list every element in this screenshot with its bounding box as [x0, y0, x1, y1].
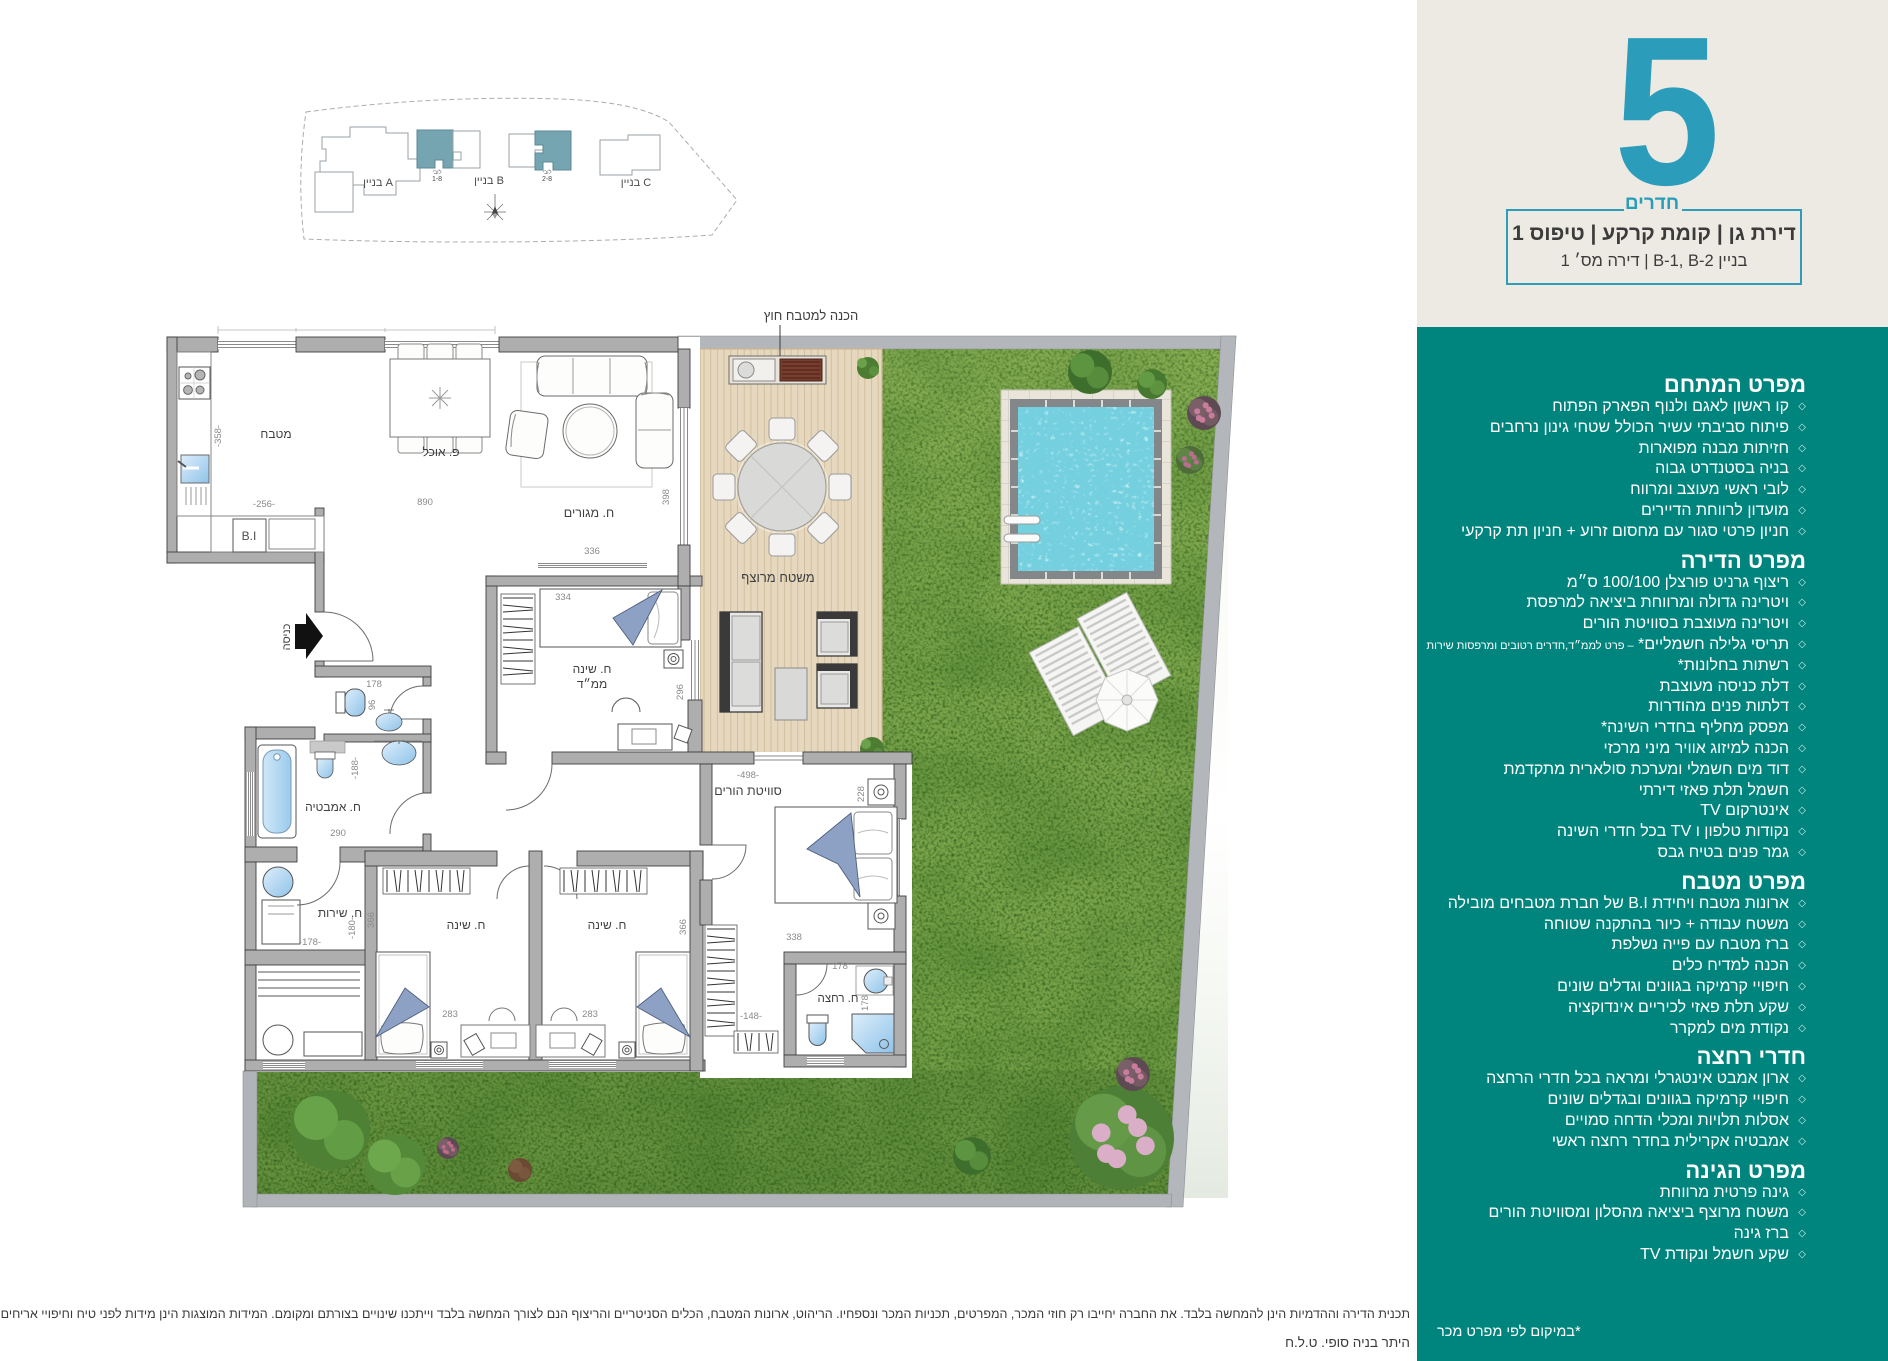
- svg-text:2-8: 2-8: [542, 176, 552, 183]
- svg-text:890: 890: [417, 497, 433, 508]
- svg-text:כניסה: כניסה: [281, 623, 293, 650]
- svg-text:משטח מרוצף: משטח מרוצף: [741, 570, 814, 585]
- svg-text:הכנה למטבח חוץ: הכנה למטבח חוץ: [764, 308, 858, 323]
- svg-text:283: 283: [442, 1009, 458, 1020]
- svg-text:ח. שינה: ח. שינה: [447, 918, 486, 932]
- svg-text:סוויטת הורים: סוויטת הורים: [714, 784, 782, 798]
- svg-text:366: 366: [366, 912, 377, 928]
- svg-text:לובי: לובי: [542, 169, 551, 176]
- svg-text:398: 398: [661, 489, 672, 505]
- svg-text:228: 228: [856, 786, 867, 802]
- svg-text:290: 290: [330, 828, 346, 839]
- svg-text:-358-: -358-: [213, 425, 224, 447]
- svg-text:פ. אוכל: פ. אוכל: [422, 445, 459, 459]
- svg-text:283: 283: [582, 1009, 598, 1020]
- svg-text:ח. שינה: ח. שינה: [588, 918, 627, 932]
- svg-text:בניין C: בניין C: [621, 177, 651, 189]
- svg-text:ממ״ד: ממ״ד: [577, 677, 607, 691]
- svg-text:לובי: לובי: [432, 169, 441, 176]
- svg-text:ח. מגורים: ח. מגורים: [564, 506, 614, 520]
- svg-text:178: 178: [832, 961, 848, 972]
- svg-text:336: 336: [584, 546, 600, 557]
- svg-text:-188-: -188-: [350, 757, 361, 779]
- svg-text:-256-: -256-: [253, 499, 275, 510]
- svg-text:-498-: -498-: [737, 770, 759, 781]
- svg-text:334: 334: [555, 592, 571, 603]
- svg-text:-180-: -180-: [347, 917, 358, 939]
- svg-text:ח. אמבטיה: ח. אמבטיה: [305, 800, 361, 814]
- svg-text:178: 178: [860, 995, 871, 1011]
- svg-text:178: 178: [366, 679, 382, 690]
- svg-text:-178-: -178-: [299, 937, 321, 948]
- svg-text:338: 338: [786, 932, 802, 943]
- svg-text:ח. שינה: ח. שינה: [573, 662, 612, 676]
- svg-text:296: 296: [675, 684, 686, 700]
- svg-text:ח. רחצה: ח. רחצה: [818, 993, 859, 1005]
- svg-text:1-8: 1-8: [432, 176, 442, 183]
- svg-text:366: 366: [678, 919, 689, 935]
- svg-text:B.I: B.I: [242, 529, 257, 543]
- svg-text:בניין A: בניין A: [363, 177, 393, 189]
- svg-text:-148-: -148-: [740, 1011, 762, 1022]
- svg-text:בניין B: בניין B: [474, 175, 504, 187]
- svg-text:96: 96: [367, 700, 378, 711]
- svg-text:מטבח: מטבח: [260, 427, 291, 441]
